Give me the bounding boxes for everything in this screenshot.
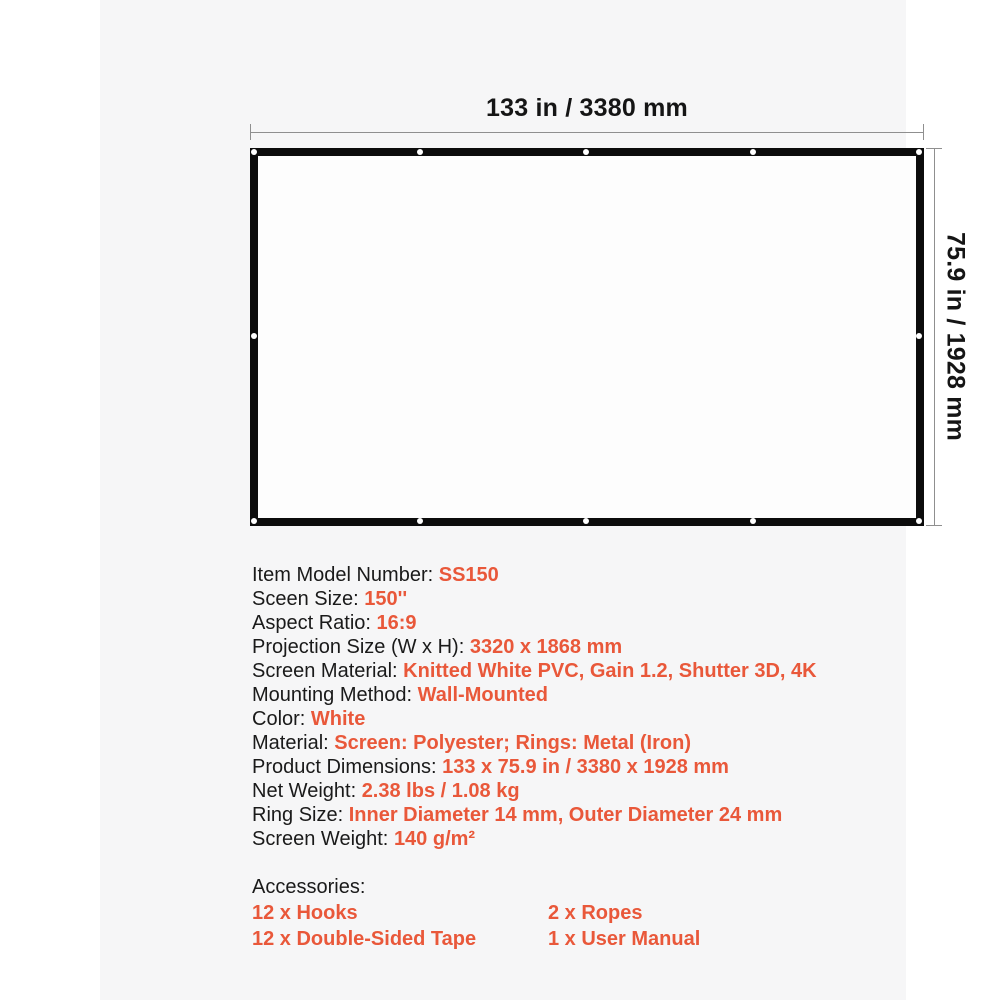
height-dimension-line — [934, 148, 935, 526]
projector-screen-diagram — [250, 148, 924, 526]
width-dimension-line — [250, 132, 924, 133]
spec-row-projection-size: Projection Size (W x H): 3320 x 1868 mm — [252, 635, 992, 659]
grommet-dot — [251, 518, 257, 524]
screen-surface — [258, 156, 916, 518]
accessories-section: Accessories: 12 x Hooks 2 x Ropes 12 x D… — [252, 874, 992, 952]
spec-row-material: Material: Screen: Polyester; Rings: Meta… — [252, 731, 992, 755]
spec-row-product-dimensions: Product Dimensions: 133 x 75.9 in / 3380… — [252, 755, 992, 779]
grommet-dot — [251, 333, 257, 339]
width-dimension-label: 133 in / 3380 mm — [250, 94, 924, 123]
spec-row-ring-size: Ring Size: Inner Diameter 14 mm, Outer D… — [252, 803, 992, 827]
grommet-dot — [417, 149, 423, 155]
accessories-row: 12 x Hooks 2 x Ropes — [252, 900, 992, 926]
grommet-dot — [916, 518, 922, 524]
spec-row-screen-material: Screen Material: Knitted White PVC, Gain… — [252, 659, 992, 683]
grommet-dot — [251, 149, 257, 155]
accessory-hooks: 12 x Hooks — [252, 900, 548, 926]
spec-list: Item Model Number: SS150 Sceen Size: 150… — [252, 563, 992, 851]
spec-row-screen-size: Sceen Size: 150'' — [252, 587, 992, 611]
grommet-dot — [750, 149, 756, 155]
grommet-dot — [916, 333, 922, 339]
height-dimension-label: 75.9 in / 1928 mm — [940, 148, 970, 526]
spec-row-net-weight: Net Weight: 2.38 lbs / 1.08 kg — [252, 779, 992, 803]
accessory-tape: 12 x Double-Sided Tape — [252, 926, 548, 952]
spec-row-screen-weight: Screen Weight: 140 g/m² — [252, 827, 992, 851]
accessories-title: Accessories: — [252, 874, 992, 900]
grommet-dot — [916, 149, 922, 155]
dimension-tick — [923, 124, 924, 140]
spec-row-mounting-method: Mounting Method: Wall-Mounted — [252, 683, 992, 707]
spec-row-aspect-ratio: Aspect Ratio: 16:9 — [252, 611, 992, 635]
grommet-dot — [583, 149, 589, 155]
accessory-ropes: 2 x Ropes — [548, 900, 642, 926]
accessories-row: 12 x Double-Sided Tape 1 x User Manual — [252, 926, 992, 952]
accessory-manual: 1 x User Manual — [548, 926, 700, 952]
product-spec-panel: 133 in / 3380 mm 75.9 in / 1928 mm Item … — [100, 0, 906, 1000]
grommet-dot — [583, 518, 589, 524]
spec-row-model-number: Item Model Number: SS150 — [252, 563, 992, 587]
grommet-dot — [417, 518, 423, 524]
spec-row-color: Color: White — [252, 707, 992, 731]
grommet-dot — [750, 518, 756, 524]
dimension-tick — [250, 124, 251, 140]
